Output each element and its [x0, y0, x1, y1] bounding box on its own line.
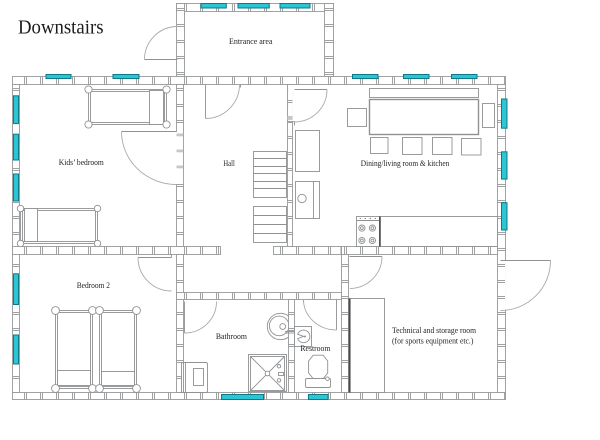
svg-text:Dining/living room & kitchen: Dining/living room & kitchen: [361, 159, 450, 168]
svg-text:Technical and storage room: Technical and storage room: [392, 326, 476, 335]
svg-text:(for sports equipment etc.): (for sports equipment etc.): [392, 337, 474, 346]
svg-text:Bathroom: Bathroom: [216, 332, 248, 341]
svg-text:Kids’ bedroom: Kids’ bedroom: [59, 158, 104, 167]
svg-text:Downstairs: Downstairs: [18, 18, 104, 39]
svg-text:Restroom: Restroom: [300, 344, 331, 353]
svg-text:Entrance area: Entrance area: [229, 37, 273, 46]
svg-text:Hall: Hall: [223, 159, 235, 168]
svg-text:Bedroom 2: Bedroom 2: [77, 281, 110, 290]
